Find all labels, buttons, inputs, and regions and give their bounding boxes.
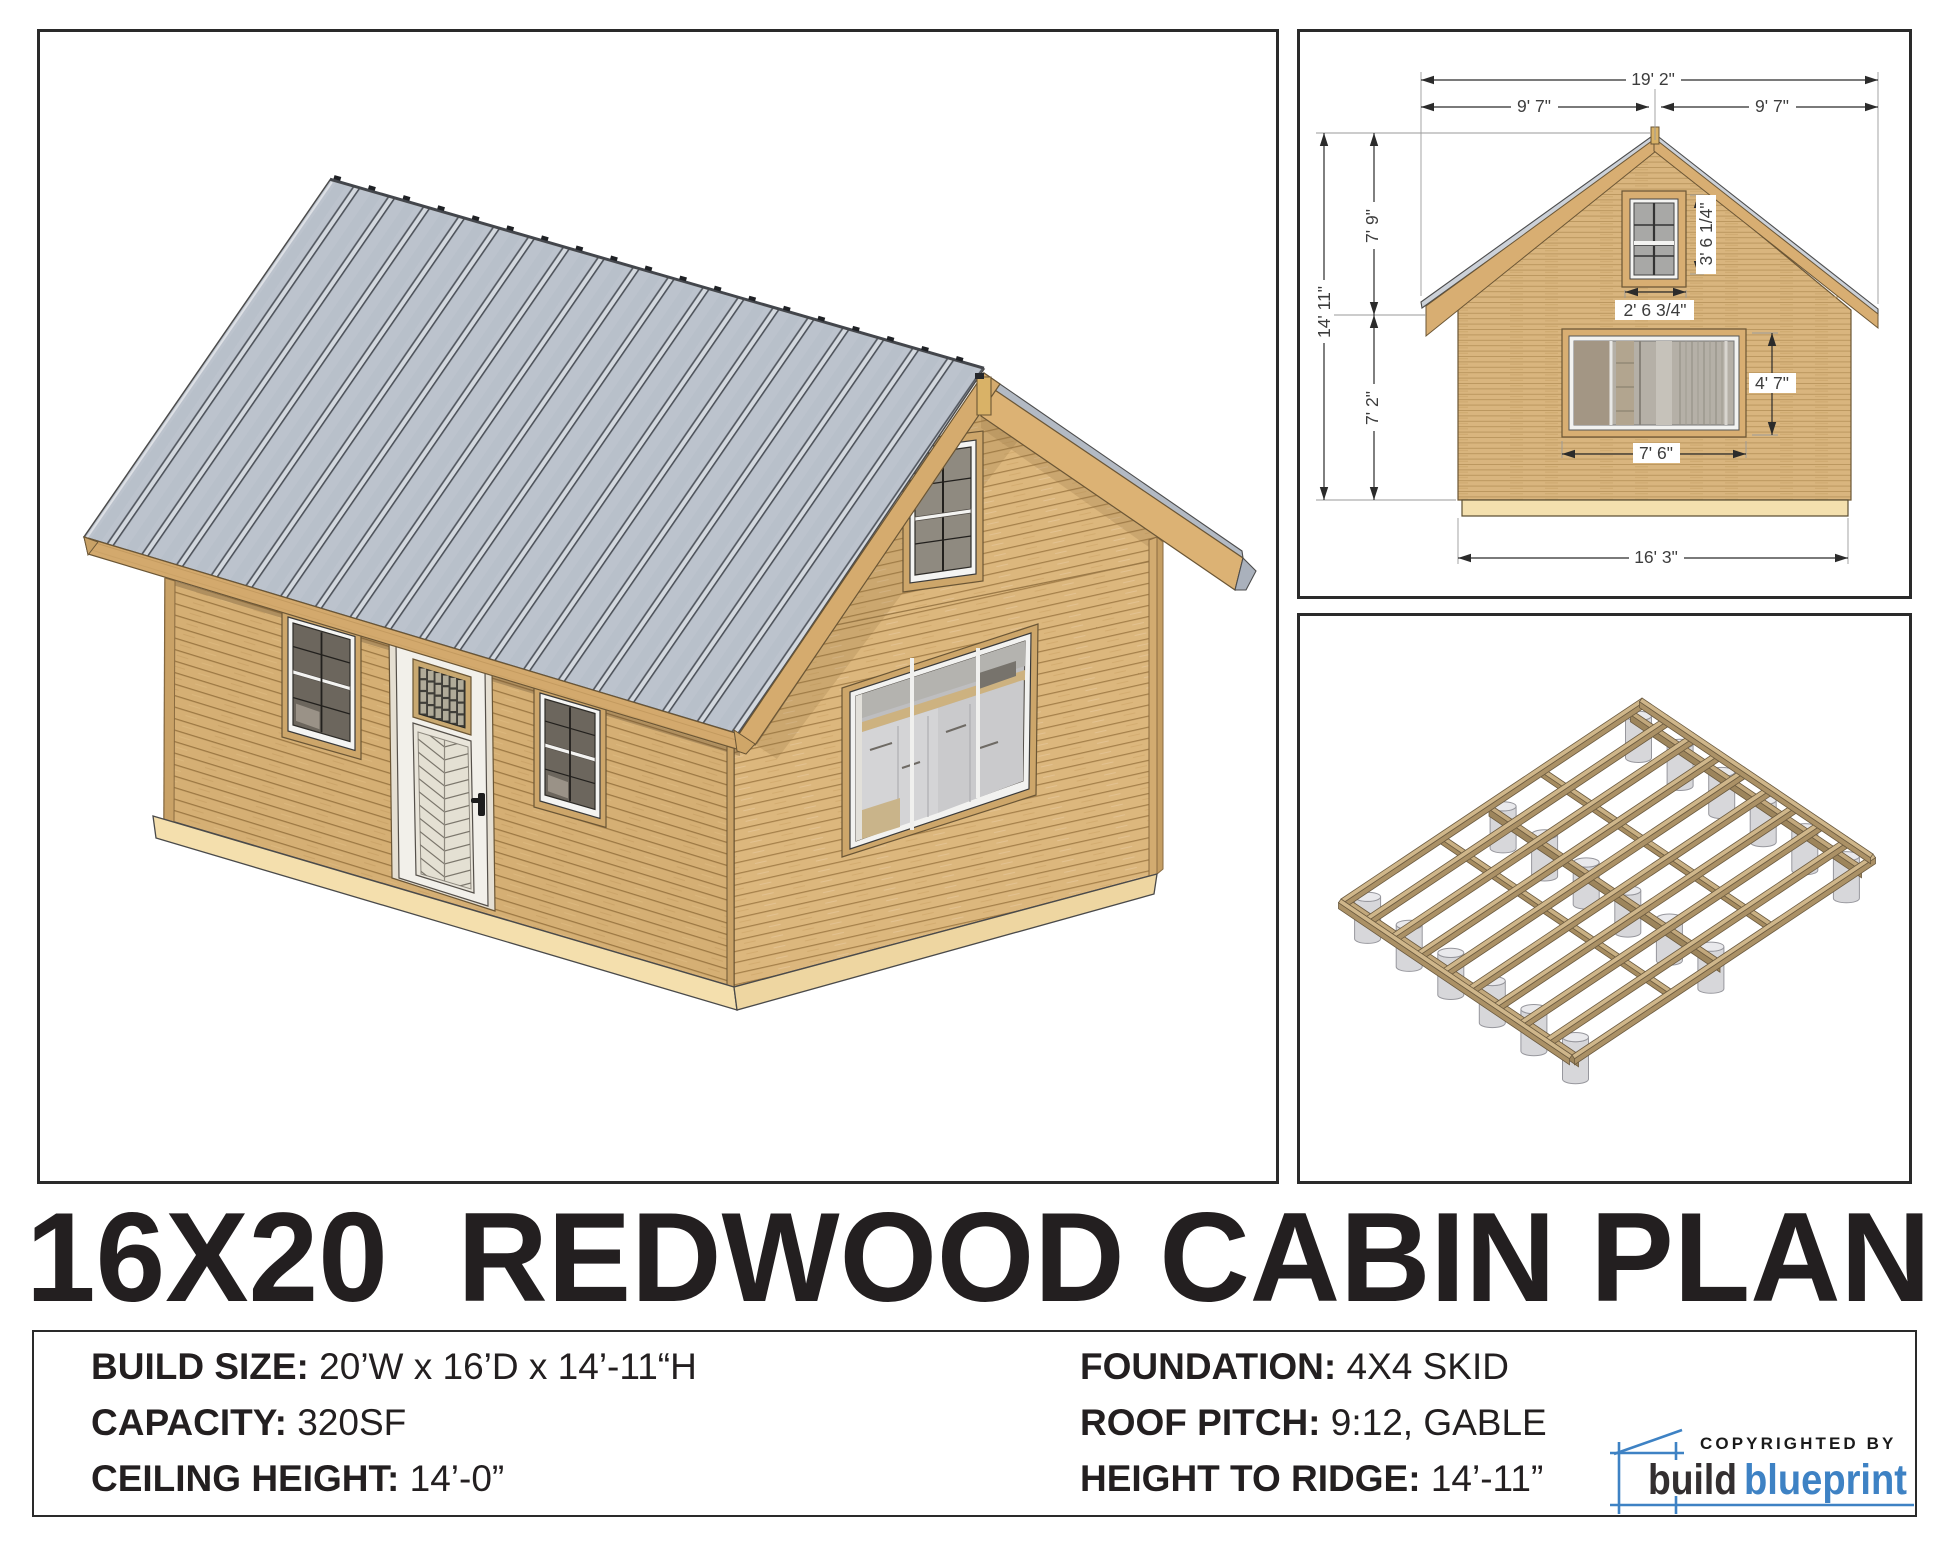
svg-text:3' 6 1/4": 3' 6 1/4" (1696, 202, 1716, 265)
svg-text:blueprint: blueprint (1744, 1456, 1907, 1504)
svg-text:build: build (1648, 1456, 1737, 1504)
svg-text:9' 7": 9' 7" (1517, 96, 1551, 116)
svg-text:7' 9": 7' 9" (1362, 209, 1382, 243)
svg-text:7' 6": 7' 6" (1639, 443, 1673, 463)
svg-text:14' 11": 14' 11" (1314, 286, 1334, 338)
svg-text:COPYRIGHTED BY: COPYRIGHTED BY (1700, 1434, 1896, 1453)
svg-text:2' 6 3/4": 2' 6 3/4" (1623, 300, 1686, 320)
svg-text:4' 7": 4' 7" (1755, 373, 1789, 393)
svg-text:7' 2": 7' 2" (1362, 391, 1382, 425)
svg-text:19' 2": 19' 2" (1631, 69, 1675, 89)
svg-text:16' 3": 16' 3" (1634, 547, 1678, 567)
svg-text:9' 7": 9' 7" (1755, 96, 1789, 116)
